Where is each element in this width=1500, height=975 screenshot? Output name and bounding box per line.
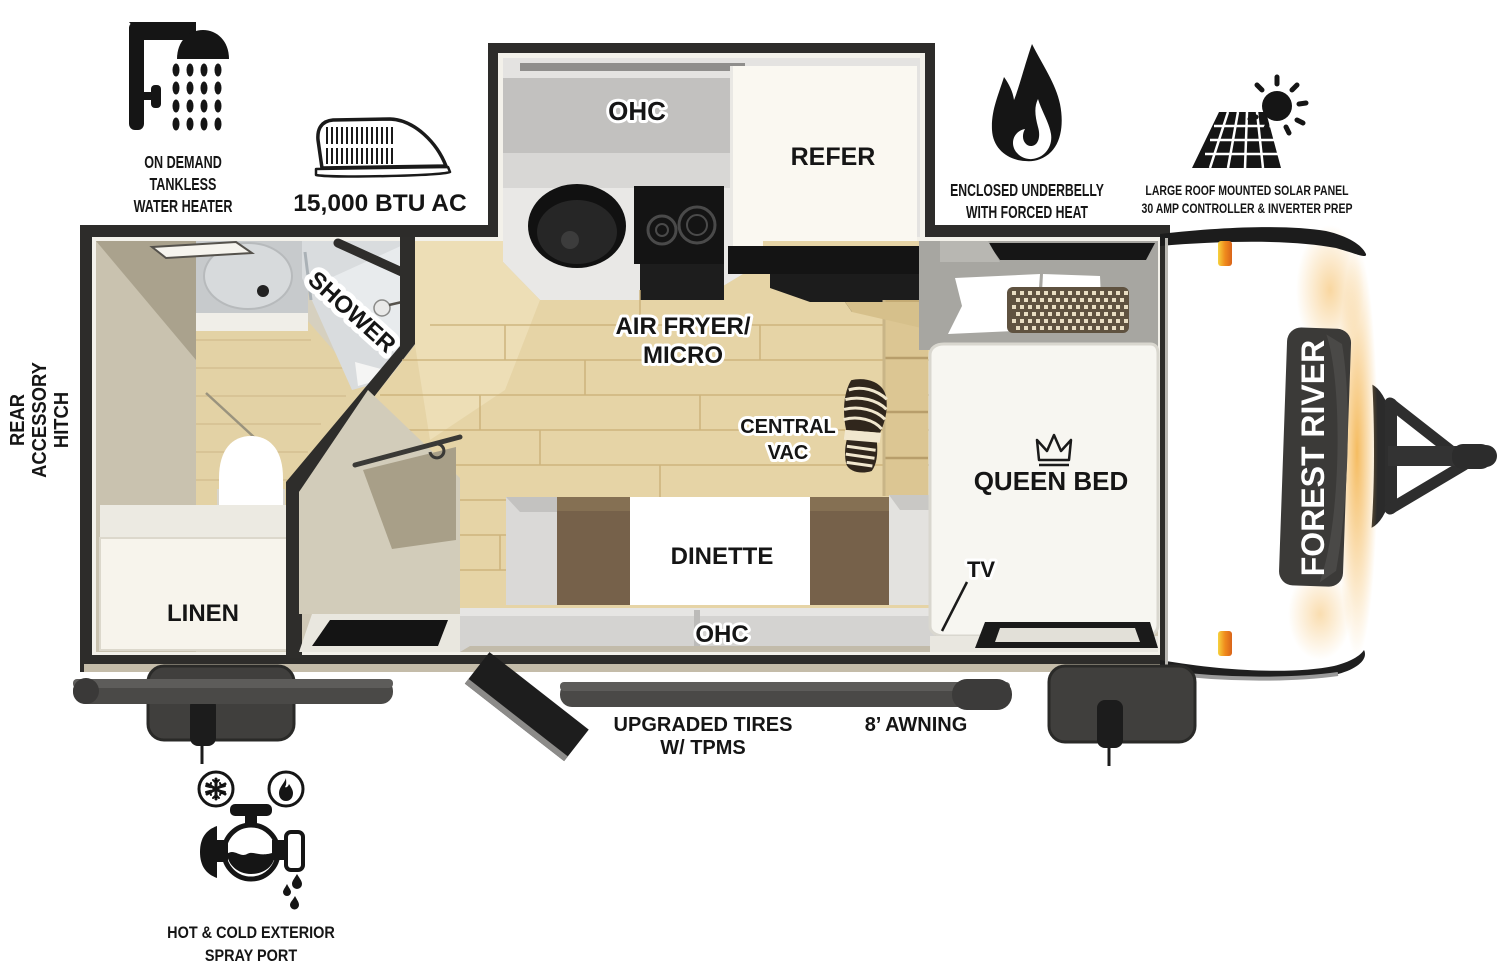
svg-text:FOREST RIVER: FOREST RIVER: [1295, 340, 1331, 576]
svg-text:DINETTE: DINETTE: [671, 543, 774, 570]
svg-text:REAR: REAR: [7, 394, 29, 446]
svg-text:MICRO: MICRO: [643, 342, 723, 369]
svg-text:OHC: OHC: [695, 621, 748, 648]
svg-text:CENTRAL: CENTRAL: [740, 416, 836, 438]
svg-text:ON DEMAND: ON DEMAND: [144, 153, 222, 173]
svg-text:TANKLESS: TANKLESS: [150, 175, 217, 195]
svg-text:WITH FORCED HEAT: WITH FORCED HEAT: [966, 203, 1089, 223]
svg-text:LARGE ROOF MOUNTED SOLAR PANEL: LARGE ROOF MOUNTED SOLAR PANEL: [1145, 183, 1349, 199]
svg-text:OHC: OHC: [608, 96, 666, 126]
svg-text:30 AMP CONTROLLER & INVERTER P: 30 AMP CONTROLLER & INVERTER PREP: [1142, 201, 1353, 217]
svg-text:15,000 BTU AC: 15,000 BTU AC: [293, 190, 467, 217]
svg-text:ACCESSORY: ACCESSORY: [29, 362, 51, 478]
svg-text:REFER: REFER: [791, 143, 876, 171]
svg-text:QUEEN BED: QUEEN BED: [974, 466, 1129, 496]
svg-text:HOT & COLD EXTERIOR: HOT & COLD EXTERIOR: [167, 924, 335, 942]
svg-text:LINEN: LINEN: [167, 600, 239, 627]
svg-text:AIR FRYER/: AIR FRYER/: [615, 313, 750, 340]
svg-text:SPRAY PORT: SPRAY PORT: [205, 947, 298, 965]
svg-text:VAC: VAC: [768, 442, 809, 464]
svg-text:WATER HEATER: WATER HEATER: [134, 197, 233, 217]
svg-text:8’ AWNING: 8’ AWNING: [865, 714, 968, 736]
svg-text:TV: TV: [967, 557, 995, 582]
svg-text:ENCLOSED UNDERBELLY: ENCLOSED UNDERBELLY: [950, 181, 1104, 201]
svg-text:HITCH: HITCH: [51, 392, 73, 448]
svg-text:W/ TPMS: W/ TPMS: [660, 737, 746, 759]
svg-text:UPGRADED TIRES: UPGRADED TIRES: [614, 714, 793, 736]
